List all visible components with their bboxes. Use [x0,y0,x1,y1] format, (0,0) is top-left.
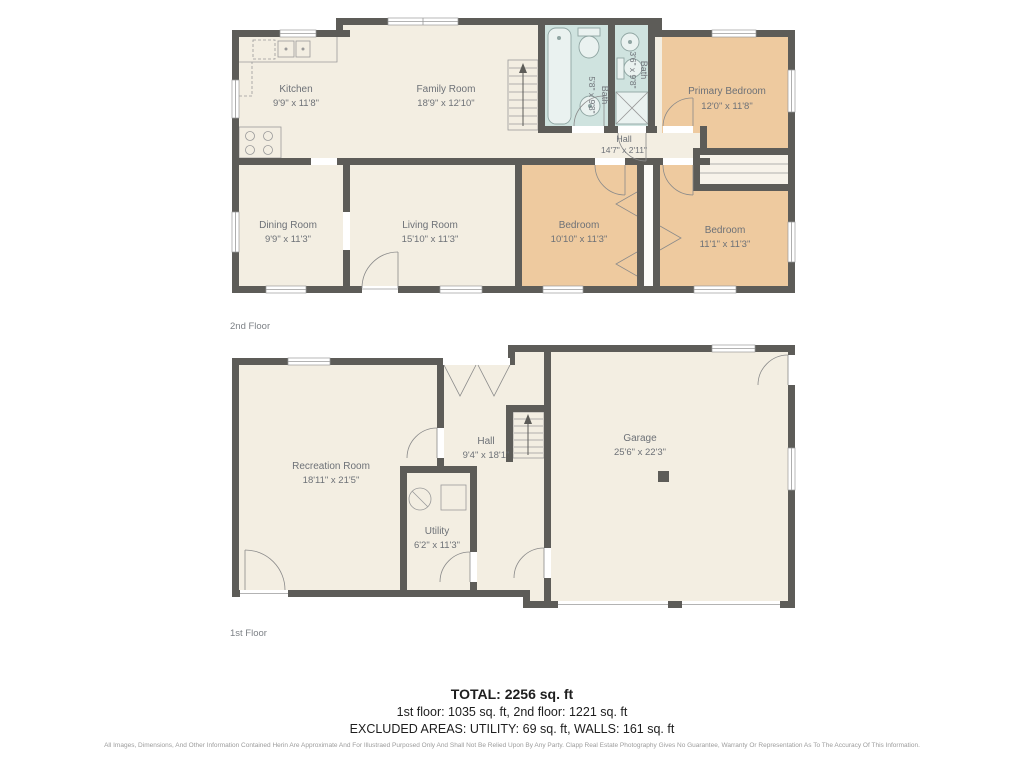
total-area-text: TOTAL: 2256 sq. ft [0,686,1024,702]
bath-main-dims: 5'8" x 9'8" [587,76,597,113]
garage-post [658,471,669,482]
dining-room-label: Dining Room [259,220,317,231]
first-floor-plan: Recreation Room 18'11" x 21'5" Hall 9'4"… [230,345,795,639]
bath-main-label: Bath [600,86,610,105]
kitchen-label: Kitchen [279,84,312,95]
second-floor-label: 2nd Floor [230,321,270,332]
hall1-label: Hall [477,436,494,447]
bedroom-b-closet [700,155,788,184]
recreation-room-dims: 18'11" x 21'5" [303,475,360,486]
family-room-label: Family Room [417,84,476,95]
hall2-dims: 14'7" x 2'11" [601,145,647,155]
utility-label: Utility [425,526,449,537]
garage-dims: 25'6" x 22'3" [614,447,666,458]
second-floor-plan: Kitchen 9'9" x 11'8" Family Room 18'9" x… [230,18,795,332]
bedroom-b-dims: 11'1" x 11'3" [700,239,751,250]
bedroom-closet-column [644,165,653,286]
hall2-label: Hall [616,134,632,144]
bath-small-label: Bath [639,61,649,80]
garage-label: Garage [623,433,657,444]
recreation-room-label: Recreation Room [292,461,370,472]
floor-plan-image: Kitchen 9'9" x 11'8" Family Room 18'9" x… [0,0,1024,768]
sink-icon-2 [621,33,639,51]
primary-bedroom-label: Primary Bedroom [688,86,766,97]
utility-dims: 6'2" x 11'3" [414,540,460,551]
disclaimer-text: All Images, Dimensions, And Other Inform… [0,742,1024,749]
excluded-areas-text: EXCLUDED AREAS: UTILITY: 69 sq. ft, WALL… [0,722,1024,736]
floor-areas-text: 1st floor: 1035 sq. ft, 2nd floor: 1221 … [0,705,1024,719]
bedroom-b-label: Bedroom [705,225,746,236]
bathtub-icon [548,28,571,124]
dining-room-dims: 9'9" x 11'3" [265,234,311,245]
living-room-label: Living Room [402,220,458,231]
first-floor-label: 1st Floor [230,628,267,639]
bedroom-a-label: Bedroom [559,220,600,231]
bedroom-a-dims: 10'10" x 11'3" [551,234,608,245]
family-room-dims: 18'9" x 12'10" [417,98,474,109]
kitchen-dims: 9'9" x 11'8" [273,98,319,109]
living-room-dims: 15'10" x 11'3" [402,234,459,245]
shower-icon [616,92,648,124]
primary-bedroom-dims: 12'0" x 11'8" [701,101,752,112]
bath-small-dims: 3'6" x 9'8" [628,51,638,88]
hall1-dims: 9'4" x 18'1" [463,450,510,461]
toilet-icon [578,28,600,58]
